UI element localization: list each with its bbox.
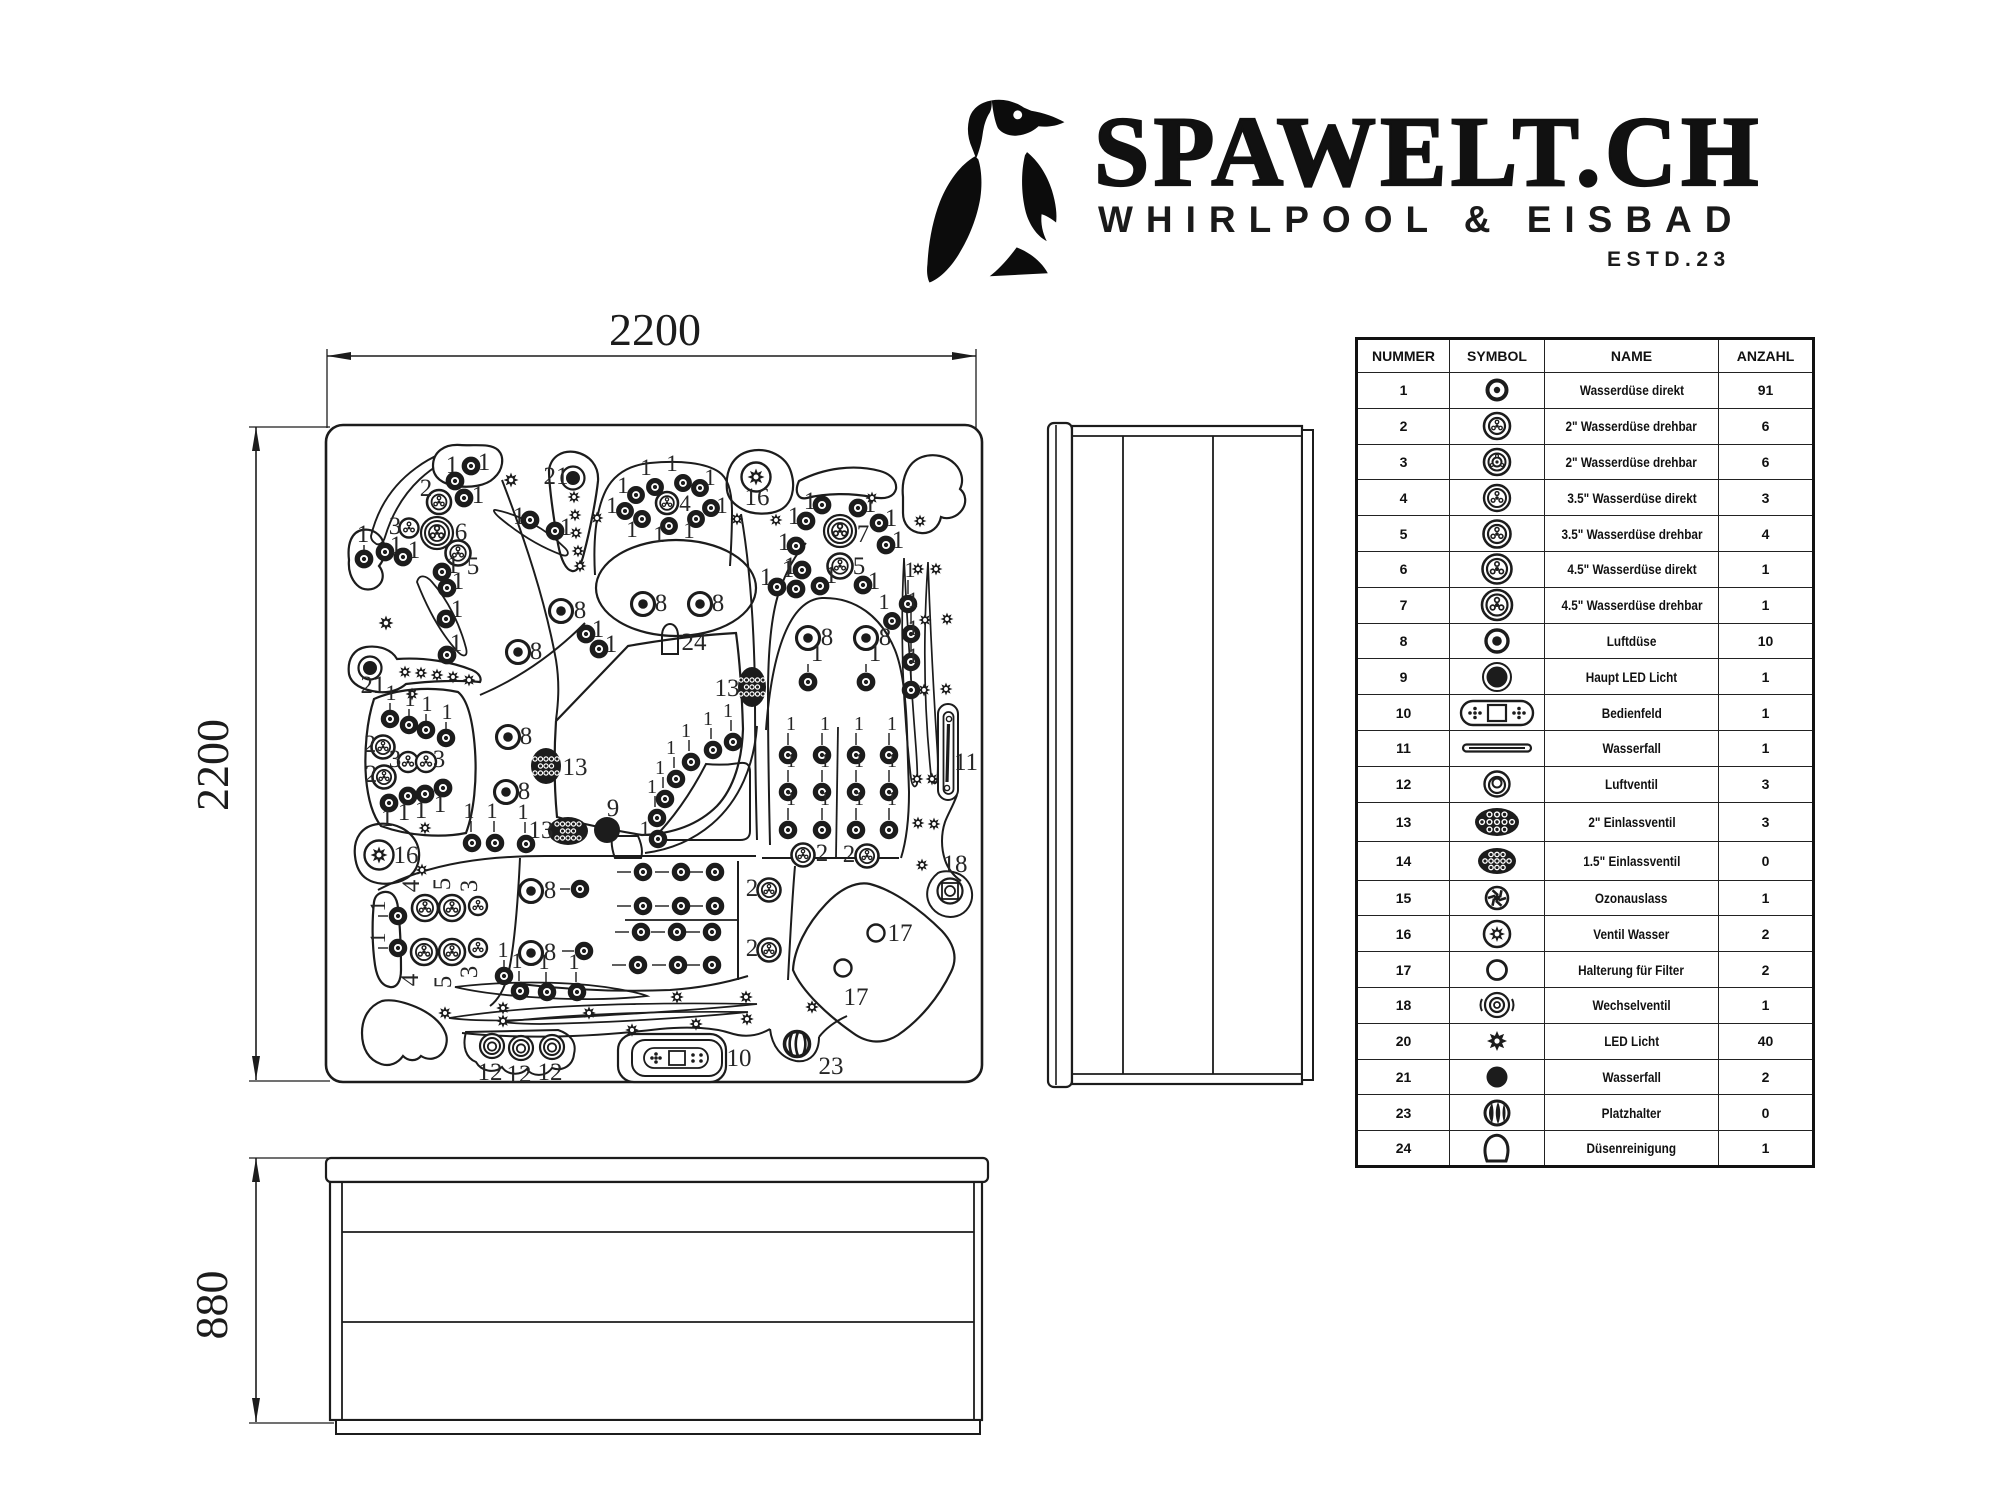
svg-text:3: 3 [433,746,446,773]
svg-text:1: 1 [908,615,919,640]
svg-text:9: 9 [607,795,620,822]
svg-text:1: 1 [539,949,550,974]
svg-text:1: 1 [513,503,526,530]
svg-text:1: 1 [887,713,897,735]
svg-text:3: 3 [456,880,483,893]
svg-text:1: 1 [703,708,713,730]
svg-text:1: 1 [512,948,523,973]
svg-text:13: 13 [563,754,588,781]
svg-text:1: 1 [788,503,801,530]
svg-text:880: 880 [186,1271,237,1340]
svg-text:1: 1 [415,797,428,824]
svg-text:1: 1 [560,514,573,541]
svg-text:1: 1 [854,788,864,810]
svg-text:1: 1 [655,757,665,779]
svg-text:1: 1 [804,488,817,515]
svg-text:2: 2 [746,935,759,962]
svg-text:1: 1 [908,643,919,668]
svg-text:1: 1 [640,816,651,841]
svg-text:18: 18 [943,851,968,878]
svg-text:12: 12 [507,1061,532,1088]
svg-text:1: 1 [357,521,370,548]
svg-text:1: 1 [640,455,652,480]
svg-text:2200: 2200 [609,304,701,355]
svg-text:1: 1 [605,631,618,658]
svg-text:1: 1 [782,556,795,583]
svg-text:1: 1 [569,949,580,974]
svg-text:16: 16 [394,842,419,869]
svg-text:1: 1 [626,517,638,542]
svg-text:1: 1 [518,799,529,824]
svg-text:1: 1 [472,482,485,509]
svg-text:1: 1 [666,737,676,759]
svg-text:1: 1 [825,562,838,589]
svg-text:1: 1 [723,700,733,722]
svg-text:1: 1 [786,750,796,772]
svg-text:1: 1 [647,776,657,798]
svg-text:7: 7 [857,521,870,548]
svg-text:4: 4 [398,879,425,892]
svg-text:3: 3 [456,966,483,979]
svg-text:1: 1 [786,788,796,810]
svg-text:1: 1 [820,788,830,810]
svg-text:1: 1 [422,691,433,716]
svg-text:1: 1 [464,798,475,823]
svg-text:13: 13 [715,675,740,702]
svg-text:8: 8 [574,597,587,624]
svg-text:5: 5 [467,553,480,580]
svg-text:1: 1 [681,720,691,742]
svg-text:1: 1 [811,640,824,667]
svg-text:2200: 2200 [187,719,238,811]
svg-text:1: 1 [786,713,796,735]
svg-text:21: 21 [361,672,386,699]
svg-text:5: 5 [430,976,457,989]
svg-text:17: 17 [888,920,913,947]
svg-text:1: 1 [365,901,390,912]
svg-text:1: 1 [887,788,897,810]
svg-text:2: 2 [420,475,433,502]
svg-text:2: 2 [365,761,378,788]
svg-text:1: 1 [617,473,629,498]
svg-text:1: 1 [452,568,465,595]
svg-text:4: 4 [679,491,691,516]
svg-text:1: 1 [760,564,773,591]
svg-text:8: 8 [655,590,668,617]
svg-text:1: 1 [408,537,421,564]
svg-text:1: 1 [887,750,897,772]
svg-text:1: 1 [450,630,463,657]
svg-text:1: 1 [716,493,728,518]
svg-text:1: 1 [704,465,716,490]
svg-text:1: 1 [653,522,665,547]
svg-text:16: 16 [745,484,770,511]
svg-text:1: 1 [820,750,830,772]
svg-text:1: 1 [434,791,447,818]
svg-text:1: 1 [892,527,905,554]
svg-text:10: 10 [727,1045,752,1072]
svg-text:23: 23 [819,1053,844,1080]
svg-text:1: 1 [405,686,416,711]
svg-text:17: 17 [844,984,869,1011]
svg-text:1: 1 [854,750,864,772]
svg-text:1: 1 [451,596,464,623]
svg-text:1: 1 [498,937,509,962]
svg-text:2: 2 [746,875,759,902]
svg-text:2: 2 [364,731,377,758]
svg-text:8: 8 [530,638,543,665]
svg-text:1: 1 [386,680,397,705]
svg-text:12: 12 [538,1059,563,1086]
svg-text:8: 8 [520,723,533,750]
svg-text:2: 2 [816,840,829,867]
svg-text:1: 1 [879,589,890,614]
svg-text:8: 8 [712,590,725,617]
svg-text:5: 5 [429,878,456,891]
svg-text:1: 1 [487,798,498,823]
svg-text:1: 1 [666,451,678,476]
svg-text:12: 12 [478,1059,503,1086]
svg-text:1: 1 [442,699,453,724]
svg-text:2: 2 [843,841,856,868]
svg-text:8: 8 [544,877,557,904]
svg-text:1: 1 [478,449,491,476]
svg-text:1: 1 [908,587,919,612]
svg-text:24: 24 [682,629,708,656]
svg-text:1: 1 [869,640,882,667]
svg-text:1: 1 [365,933,390,944]
svg-text:1: 1 [398,799,411,826]
svg-text:1: 1 [778,529,791,556]
svg-text:1: 1 [820,713,830,735]
svg-text:21: 21 [544,463,569,490]
svg-text:1: 1 [854,713,864,735]
svg-text:4: 4 [397,973,424,986]
svg-text:1: 1 [381,805,394,832]
svg-text:1: 1 [606,493,618,518]
svg-text:11: 11 [954,749,978,776]
svg-text:1: 1 [592,616,605,643]
svg-text:1: 1 [683,518,695,543]
